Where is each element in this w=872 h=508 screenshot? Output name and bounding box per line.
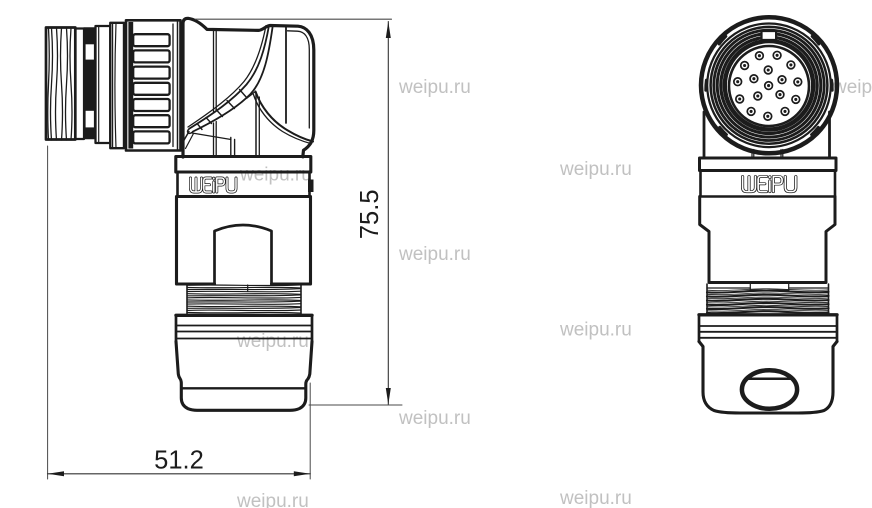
svg-text:51.2: 51.2 [154, 446, 204, 474]
svg-text:weipu.ru: weipu.ru [559, 320, 632, 341]
svg-text:weipu.ru: weipu.ru [559, 159, 632, 180]
svg-text:weipu.ru: weipu.ru [239, 165, 312, 186]
svg-text:weipu.ru: weipu.ru [559, 488, 632, 508]
svg-text:weipu.ru: weipu.ru [398, 408, 471, 429]
svg-text:75.5: 75.5 [356, 189, 384, 239]
svg-text:weipu.ru: weipu.ru [398, 244, 471, 265]
svg-text:weipu.ru: weipu.ru [236, 331, 309, 352]
svg-text:weipu.ru: weipu.ru [236, 491, 309, 508]
svg-text:weipu.ru: weipu.ru [398, 77, 471, 98]
